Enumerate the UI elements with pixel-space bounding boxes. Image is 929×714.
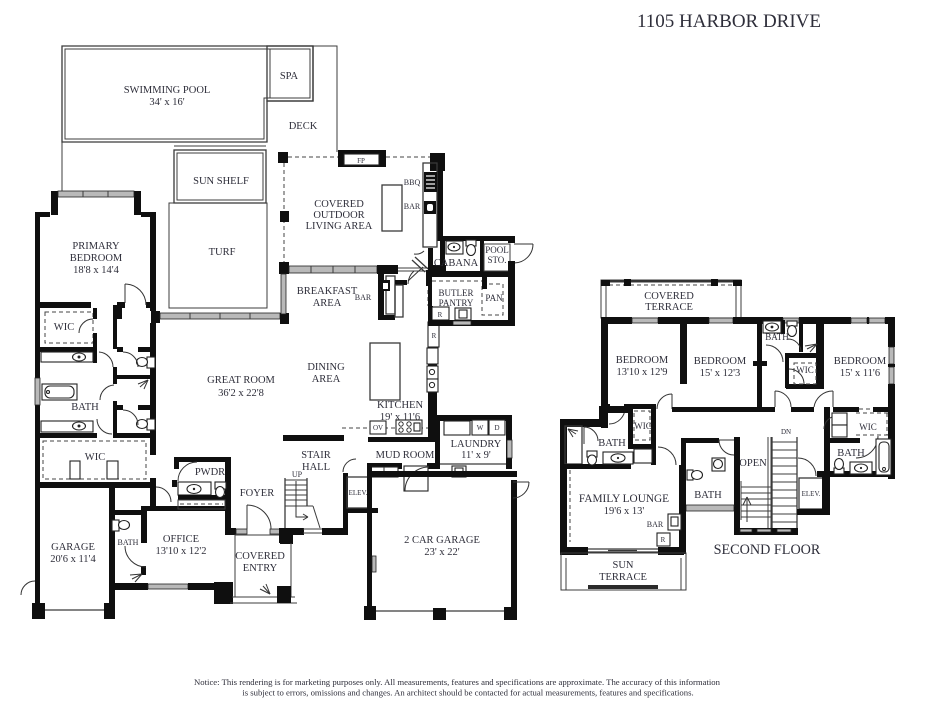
svg-text:MUD ROOM: MUD ROOM	[376, 450, 435, 461]
svg-text:BEDROOM: BEDROOM	[834, 356, 887, 367]
svg-text:R: R	[432, 332, 437, 340]
svg-text:PRIMARY: PRIMARY	[72, 241, 120, 252]
svg-text:FOYER: FOYER	[240, 488, 274, 499]
svg-text:23' x 22': 23' x 22'	[424, 547, 459, 558]
svg-text:UP: UP	[292, 470, 303, 479]
svg-text:R: R	[661, 536, 666, 544]
svg-text:KITCHEN: KITCHEN	[377, 400, 423, 411]
svg-text:15' x 12'3: 15' x 12'3	[700, 368, 741, 379]
svg-text:HALL: HALL	[302, 462, 330, 473]
svg-text:PAN: PAN	[485, 293, 503, 303]
svg-text:BUTLER: BUTLER	[439, 288, 474, 298]
svg-text:WIC: WIC	[85, 452, 105, 463]
svg-text:FAMILY LOUNGE: FAMILY LOUNGE	[579, 493, 669, 505]
svg-text:Notice: This rendering is for: Notice: This rendering is for marketing …	[194, 677, 721, 687]
svg-text:BATH: BATH	[765, 332, 789, 342]
svg-text:WIC: WIC	[54, 322, 74, 333]
svg-text:36'2 x 22'8: 36'2 x 22'8	[218, 388, 264, 399]
svg-text:LIVING AREA: LIVING AREA	[306, 221, 373, 232]
svg-text:BEDROOM: BEDROOM	[616, 355, 669, 366]
svg-text:SUN SHELF: SUN SHELF	[193, 176, 249, 187]
svg-text:STO.: STO.	[487, 255, 506, 265]
svg-text:WIC: WIC	[796, 365, 814, 375]
svg-text:ENTRY: ENTRY	[243, 563, 278, 574]
svg-text:1105 HARBOR DRIVE: 1105 HARBOR DRIVE	[637, 11, 821, 32]
svg-text:OV: OV	[373, 424, 383, 432]
svg-text:BATH: BATH	[837, 448, 865, 459]
svg-text:WIC: WIC	[859, 422, 877, 432]
svg-text:SUN: SUN	[612, 560, 633, 571]
svg-text:OFFICE: OFFICE	[163, 534, 199, 545]
svg-text:R: R	[438, 311, 443, 319]
svg-text:COVERED: COVERED	[235, 551, 285, 562]
svg-text:BAR: BAR	[647, 520, 664, 529]
svg-text:PWDR: PWDR	[195, 467, 225, 478]
svg-text:SPA: SPA	[280, 71, 299, 82]
svg-text:AREA: AREA	[312, 374, 341, 385]
svg-text:34' x 16': 34' x 16'	[149, 97, 184, 108]
svg-text:ELEV.: ELEV.	[349, 489, 368, 497]
svg-text:BAR: BAR	[355, 293, 372, 302]
svg-text:FP: FP	[357, 157, 365, 165]
svg-text:13'10 x 12'2: 13'10 x 12'2	[155, 546, 206, 557]
svg-text:SWIMMING POOL: SWIMMING POOL	[124, 85, 211, 96]
svg-text:GREAT ROOM: GREAT ROOM	[207, 375, 275, 386]
svg-text:BATH: BATH	[118, 538, 139, 547]
svg-text:W: W	[477, 424, 484, 432]
svg-text:BEDROOM: BEDROOM	[70, 253, 123, 264]
svg-text:STAIR: STAIR	[301, 450, 331, 461]
svg-text:LAUNDRY: LAUNDRY	[451, 439, 502, 450]
svg-text:COVERED: COVERED	[314, 199, 364, 210]
svg-text:BATH: BATH	[694, 490, 722, 501]
svg-text:13'10 x 12'9: 13'10 x 12'9	[616, 367, 667, 378]
svg-text:18'8 x 14'4: 18'8 x 14'4	[73, 265, 120, 276]
svg-text:TURF: TURF	[209, 247, 236, 258]
svg-text:CABANA: CABANA	[434, 258, 479, 269]
svg-text:DN: DN	[781, 428, 791, 436]
svg-text:20'6 x 11'4: 20'6 x 11'4	[50, 554, 96, 565]
svg-text:DECK: DECK	[289, 121, 318, 132]
svg-text:BATH: BATH	[71, 402, 99, 413]
svg-text:BAR: BAR	[404, 202, 421, 211]
svg-text:is subject to errors, omission: is subject to errors, omissions and chan…	[242, 688, 693, 698]
svg-text:2 CAR GARAGE: 2 CAR GARAGE	[404, 535, 480, 546]
svg-text:TERRACE: TERRACE	[599, 572, 647, 583]
svg-text:SECOND FLOOR: SECOND FLOOR	[714, 542, 821, 558]
svg-text:AREA: AREA	[313, 298, 342, 309]
svg-text:OPEN: OPEN	[739, 458, 767, 469]
svg-text:POOL: POOL	[485, 245, 509, 255]
svg-text:D: D	[494, 424, 499, 432]
svg-text:OUTDOOR: OUTDOOR	[313, 210, 364, 221]
svg-text:GARAGE: GARAGE	[51, 542, 95, 553]
svg-text:19'6 x 13': 19'6 x 13'	[604, 506, 645, 517]
svg-text:15' x 11'6: 15' x 11'6	[840, 368, 880, 379]
svg-text:BATH: BATH	[598, 438, 626, 449]
svg-text:BREAKFAST: BREAKFAST	[297, 286, 358, 297]
svg-text:BEDROOM: BEDROOM	[694, 356, 747, 367]
svg-text:TERRACE: TERRACE	[645, 302, 693, 313]
svg-text:WIC: WIC	[634, 421, 652, 431]
svg-text:ELEV.: ELEV.	[802, 490, 821, 498]
svg-text:DINING: DINING	[307, 362, 345, 373]
svg-text:COVERED: COVERED	[644, 291, 694, 302]
svg-text:BBQ: BBQ	[404, 178, 421, 187]
svg-text:11' x 9': 11' x 9'	[461, 450, 491, 461]
